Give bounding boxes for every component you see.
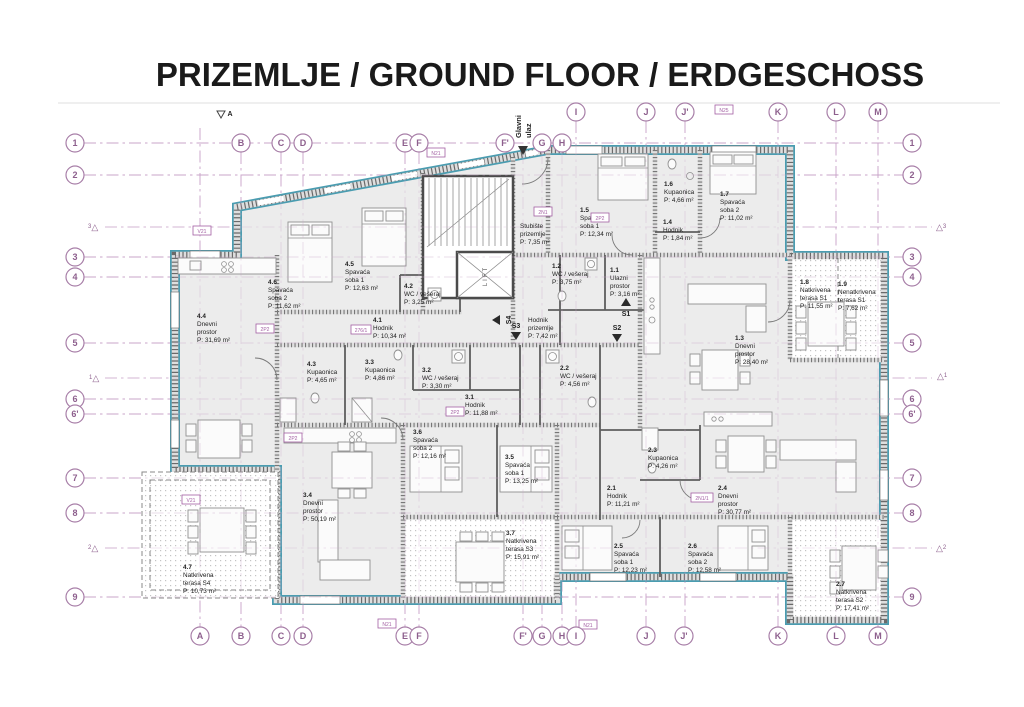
grid-bubble: 9 [903,588,921,606]
grid-bubble: J [637,627,655,645]
svg-text:4.6: 4.6 [268,279,277,286]
svg-text:P: 3,30 m²: P: 3,30 m² [422,383,451,390]
plan-tag: N21 [579,620,597,629]
elevator: LIFT [457,252,513,298]
svg-text:2P2: 2P2 [289,436,298,442]
svg-text:2.5: 2.5 [614,543,623,550]
svg-text:1.9: 1.9 [838,281,847,288]
svg-text:6': 6' [908,409,915,419]
svg-text:4: 4 [72,272,77,282]
svg-text:3.2: 3.2 [422,367,431,374]
svg-text:L: L [833,107,839,117]
svg-text:D: D [300,138,307,148]
svg-text:3.6: 3.6 [413,429,422,436]
svg-text:P: 17,41 m²: P: 17,41 m² [836,605,869,612]
svg-text:F: F [416,631,422,641]
svg-text:P: 12,23 m²: P: 12,23 m² [614,567,647,574]
grid-bubble: A [191,627,209,645]
svg-text:Kupaonica: Kupaonica [365,367,396,374]
grid-bubble: M [869,627,887,645]
svg-text:soba 1: soba 1 [614,559,634,566]
svg-text:P: 12,16 m²: P: 12,16 m² [413,453,446,460]
svg-text:H: H [559,631,566,641]
svg-text:prizemlje: prizemlje [520,231,546,238]
svg-text:Natkrivena: Natkrivena [800,287,831,294]
delta-mark: 2△ [88,543,98,553]
plan-tag: 2P2 [284,433,302,442]
grid-bubble: G [533,134,551,152]
plan-tag: N21 [427,148,445,157]
grid-bubble: 7 [66,469,84,487]
svg-text:Spavaća: Spavaća [268,287,293,294]
grid-bubble: 5 [66,334,84,352]
svg-text:P: 10,34 m²: P: 10,34 m² [373,333,406,340]
svg-text:7: 7 [909,473,914,483]
bed [500,446,552,492]
grid-bubble: 7 [903,469,921,487]
svg-text:6': 6' [71,409,78,419]
svg-text:Spavaća: Spavaća [688,551,713,558]
svg-text:Ulazni: Ulazni [610,275,628,282]
svg-text:4.5: 4.5 [345,261,354,268]
svg-text:Spavaća: Spavaća [505,462,530,469]
svg-text:Hodnik: Hodnik [663,227,684,234]
svg-text:E: E [402,631,408,641]
grid-bubble: M [869,103,887,121]
svg-text:F': F' [501,138,509,148]
svg-text:3.4: 3.4 [303,492,312,499]
grid-bubbles-left: 1 2 3 4 5 6 6' 7 8 9 [66,134,84,606]
svg-text:1.7: 1.7 [720,191,729,198]
svg-text:5: 5 [72,338,77,348]
svg-text:1.3: 1.3 [735,335,744,342]
svg-text:E: E [402,138,408,148]
svg-text:P: 11,21 m²: P: 11,21 m² [607,501,640,508]
svg-text:P: 28,40 m²: P: 28,40 m² [735,359,768,366]
svg-text:7: 7 [72,473,77,483]
svg-text:2N1/1: 2N1/1 [695,496,709,502]
bed [598,154,648,200]
svg-text:prostor: prostor [718,501,739,508]
svg-text:Kupaonica: Kupaonica [307,369,338,376]
plan-tag: 2N1/1 [691,493,713,502]
svg-text:P: 4,66 m²: P: 4,66 m² [664,197,693,204]
grid-bubble: F' [514,627,532,645]
grid-bubble: 2 [903,166,921,184]
grid-bubble: 6' [66,405,84,423]
svg-text:C: C [278,138,285,148]
svg-text:8: 8 [909,508,914,518]
svg-text:P: 50,19 m²: P: 50,19 m² [303,516,336,523]
plan-tag: N25 [715,105,733,114]
svg-text:V21: V21 [187,498,196,504]
page-title: PRIZEMLJE / GROUND FLOOR / ERDGESCHOSS [156,56,924,93]
svg-text:WC / vešeraj: WC / vešeraj [552,271,589,278]
dining-table [456,532,504,592]
svg-text:4.2: 4.2 [404,283,413,290]
floor-plan-canvas: PRIZEMLJE / GROUND FLOOR / ERDGESCHOSS [0,0,1024,707]
svg-text:prostor: prostor [303,508,324,515]
grid-bubble: F [410,134,428,152]
svg-text:2P2: 2P2 [261,327,270,333]
svg-text:2P2: 2P2 [596,216,605,222]
svg-text:B: B [238,138,245,148]
svg-text:3.5: 3.5 [505,454,514,461]
svg-text:P: 4,26 m²: P: 4,26 m² [648,463,677,470]
svg-text:terasa S4: terasa S4 [183,580,211,587]
svg-text:P: 1,84 m²: P: 1,84 m² [663,235,692,242]
delta-mark: △1 [937,371,948,381]
svg-text:prostor: prostor [610,283,631,290]
svg-text:prizemlje: prizemlje [528,325,554,332]
svg-text:P: 31,69 m²: P: 31,69 m² [197,337,230,344]
plan-tag: 276/1 [351,325,371,334]
svg-text:A: A [197,631,204,641]
svg-text:5: 5 [909,338,914,348]
grid-bubble: 5 [903,334,921,352]
grid-bubble: L [827,627,845,645]
svg-text:P: 4,86 m²: P: 4,86 m² [365,375,394,382]
svg-text:soba 2: soba 2 [413,445,433,452]
plan-tag: N21 [378,619,396,628]
grid-bubble: 9 [66,588,84,606]
grid-bubble: 6' [903,405,921,423]
svg-text:P: 13,25 m²: P: 13,25 m² [505,478,538,485]
svg-text:C: C [278,631,285,641]
svg-text:soba 1: soba 1 [580,223,600,230]
grid-bubbles-right: 1 2 3 4 5 6 6' 7 8 9 [903,134,921,606]
grid-bubble: C [272,627,290,645]
svg-text:G: G [538,138,545,148]
svg-text:3: 3 [909,252,914,262]
grid-bubbles-bottom: A B C D E F F' G H I J J' K L M [191,627,887,645]
svg-text:1: 1 [909,138,914,148]
svg-text:9: 9 [72,592,77,602]
svg-text:P: 3,25 m²: P: 3,25 m² [404,299,433,306]
svg-text:2P2: 2P2 [451,410,460,416]
svg-text:2: 2 [909,170,914,180]
plan-tag: V21 [193,226,211,235]
svg-text:2.6: 2.6 [688,543,697,550]
grid-bubble: L [827,103,845,121]
grid-bubble: 3 [66,248,84,266]
svg-text:P: 12,34 m²: P: 12,34 m² [580,231,613,238]
grid-bubble: J' [676,103,694,121]
svg-text:P: 30,77 m²: P: 30,77 m² [718,509,751,516]
svg-text:D: D [300,631,307,641]
svg-text:6: 6 [72,394,77,404]
svg-text:M: M [874,107,882,117]
svg-text:8: 8 [72,508,77,518]
svg-text:P: 4,65 m²: P: 4,65 m² [307,377,336,384]
grid-bubble: B [232,627,250,645]
svg-text:Dnevni: Dnevni [735,343,755,350]
svg-text:P: 7,42 m²: P: 7,42 m² [528,333,557,340]
svg-text:H: H [559,138,566,148]
svg-text:M: M [874,631,882,641]
svg-text:3.7: 3.7 [506,530,515,537]
svg-text:6: 6 [909,394,914,404]
svg-text:3: 3 [72,252,77,262]
grid-bubble: F [410,627,428,645]
grid-bubble: 3 [903,248,921,266]
bed [710,152,756,194]
svg-text:prostor: prostor [735,351,756,358]
svg-text:Dnevni: Dnevni [718,493,738,500]
svg-text:1.8: 1.8 [800,279,809,286]
plan-tag: 2P2 [446,407,464,416]
svg-text:P: 7,62 m²: P: 7,62 m² [838,305,867,312]
svg-text:4.4: 4.4 [197,313,206,320]
svg-text:S3: S3 [512,323,521,330]
svg-text:J: J [643,631,648,641]
grid-bubble: 1 [903,134,921,152]
svg-text:4: 4 [909,272,914,282]
svg-text:J: J [643,107,648,117]
svg-text:Dnevni: Dnevni [303,500,323,507]
svg-text:3.1: 3.1 [465,394,474,401]
svg-text:F': F' [519,631,527,641]
svg-text:K: K [775,107,782,117]
svg-text:P: 11,62 m²: P: 11,62 m² [268,303,301,310]
grid-bubble: I [567,627,585,645]
svg-text:3.3: 3.3 [365,359,374,366]
grid-bubble: G [533,627,551,645]
svg-text:WC / vešeraj: WC / vešeraj [422,375,459,382]
svg-text:P: 15,91 m²: P: 15,91 m² [506,554,539,561]
grid-bubbles-top: B C D E F F' G H I J J' K L M [232,103,887,152]
svg-text:2N1: 2N1 [538,210,547,216]
svg-text:V21: V21 [198,229,207,235]
plan-tag: 2N1 [534,207,552,216]
grid-bubble: 4 [903,268,921,286]
svg-text:P: 4,56 m²: P: 4,56 m² [560,381,589,388]
svg-text:WC / vešeraj: WC / vešeraj [560,373,597,380]
svg-text:9: 9 [909,592,914,602]
svg-text:1.1: 1.1 [610,267,619,274]
grid-bubble: D [294,627,312,645]
grid-bubble: C [272,134,290,152]
svg-text:prostor: prostor [197,329,218,336]
svg-text:S4: S4 [506,316,513,325]
svg-text:Hodnik: Hodnik [607,493,628,500]
delta-mark: △3 [936,222,947,232]
plan-tag: 2P2 [256,324,274,333]
svg-text:WC / vešeraj: WC / vešeraj [404,291,441,298]
svg-text:Kupaonica: Kupaonica [664,189,695,196]
delta-mark: △2 [936,543,947,553]
svg-text:1: 1 [72,138,77,148]
svg-text:1.5: 1.5 [580,207,589,214]
svg-text:N21: N21 [382,622,391,628]
grid-bubble: 4 [66,268,84,286]
svg-text:2.1: 2.1 [607,485,616,492]
svg-text:F: F [416,138,422,148]
svg-text:Hodnik: Hodnik [465,402,486,409]
svg-text:P: 10,73 m²: P: 10,73 m² [183,588,216,595]
svg-text:soba 2: soba 2 [720,207,740,214]
entrance-label: ulaz [524,123,533,138]
svg-text:Spavaća: Spavaća [720,199,745,206]
svg-text:P: 11,55 m²: P: 11,55 m² [800,303,833,310]
grid-bubble: 8 [66,504,84,522]
svg-text:terasa S1: terasa S1 [838,297,866,304]
grid-bubble: B [232,134,250,152]
grid-bubble: K [769,627,787,645]
svg-text:Hodnik: Hodnik [373,325,394,332]
svg-text:N21: N21 [583,623,592,629]
grid-bubble: K [769,103,787,121]
svg-text:Stubište: Stubište [520,223,544,230]
section-marker-a: A [217,111,233,118]
svg-text:soba 1: soba 1 [505,470,525,477]
svg-text:L: L [833,631,839,641]
svg-text:1.2: 1.2 [552,263,561,270]
svg-text:Nenatkrivena: Nenatkrivena [838,289,876,296]
grid-bubble: 8 [903,504,921,522]
svg-text:P: 7,35 m²: P: 7,35 m² [520,239,549,246]
svg-text:Spavaća: Spavaća [614,551,639,558]
grid-bubble: D [294,134,312,152]
svg-text:J': J' [680,631,687,641]
svg-text:Natkrivena: Natkrivena [183,572,214,579]
svg-text:soba 2: soba 2 [268,295,288,302]
svg-text:S1: S1 [622,311,631,318]
svg-text:2: 2 [72,170,77,180]
svg-text:P: 11,02 m²: P: 11,02 m² [720,215,753,222]
svg-text:terasa S1: terasa S1 [800,295,828,302]
svg-text:P: 3,75 m²: P: 3,75 m² [552,279,581,286]
svg-text:1.4: 1.4 [663,219,672,226]
svg-text:S2: S2 [613,325,622,332]
grid-bubble: 1 [66,134,84,152]
grid-bubble: H [553,134,571,152]
svg-text:2.2: 2.2 [560,365,569,372]
svg-text:J': J' [681,107,688,117]
svg-text:K: K [775,631,782,641]
svg-text:G: G [538,631,545,641]
entrance-label: Glavni [514,115,523,138]
svg-text:I: I [575,631,578,641]
grid-bubble: F' [496,134,514,152]
svg-text:4.1: 4.1 [373,317,382,324]
plan-tag: V21 [182,495,200,504]
svg-text:2.3: 2.3 [648,447,657,454]
svg-text:2.7: 2.7 [836,581,845,588]
svg-text:4.3: 4.3 [307,361,316,368]
delta-mark: 3△ [88,222,98,232]
svg-text:1.6: 1.6 [664,181,673,188]
svg-text:N21: N21 [431,151,440,157]
svg-text:terasa S2: terasa S2 [836,597,864,604]
svg-text:A: A [227,111,232,118]
svg-text:P: 3,16 m²: P: 3,16 m² [610,291,639,298]
svg-text:B: B [238,631,245,641]
svg-text:Natkrivena: Natkrivena [836,589,867,596]
grid-bubble: 2 [66,166,84,184]
svg-text:P: 12,58 m²: P: 12,58 m² [688,567,721,574]
svg-text:276/1: 276/1 [355,328,368,334]
svg-text:Kupaonica: Kupaonica [648,455,679,462]
lift-label: LIFT [483,266,489,286]
svg-text:Spavaća: Spavaća [413,437,438,444]
bed [288,222,332,282]
svg-text:Hodnik: Hodnik [528,317,549,324]
svg-text:terasa S3: terasa S3 [506,546,534,553]
svg-text:P: 11,88 m²: P: 11,88 m² [465,410,498,417]
svg-text:4.7: 4.7 [183,564,192,571]
grid-bubble: J' [675,627,693,645]
svg-text:I: I [575,107,578,117]
grid-bubble: I [567,103,585,121]
delta-mark: 1△ [89,373,99,383]
dining-table [188,508,256,554]
plan-tag: 2P2 [591,213,609,222]
svg-text:P: 12,63 m²: P: 12,63 m² [345,285,378,292]
grid-bubble: J [637,103,655,121]
svg-text:soba 1: soba 1 [345,277,365,284]
svg-text:N25: N25 [719,108,728,114]
svg-text:Spavaća: Spavaća [345,269,370,276]
svg-text:soba 2: soba 2 [688,559,708,566]
svg-text:Natkrivena: Natkrivena [506,538,537,545]
svg-text:Dnevni: Dnevni [197,321,217,328]
svg-text:2.4: 2.4 [718,485,727,492]
